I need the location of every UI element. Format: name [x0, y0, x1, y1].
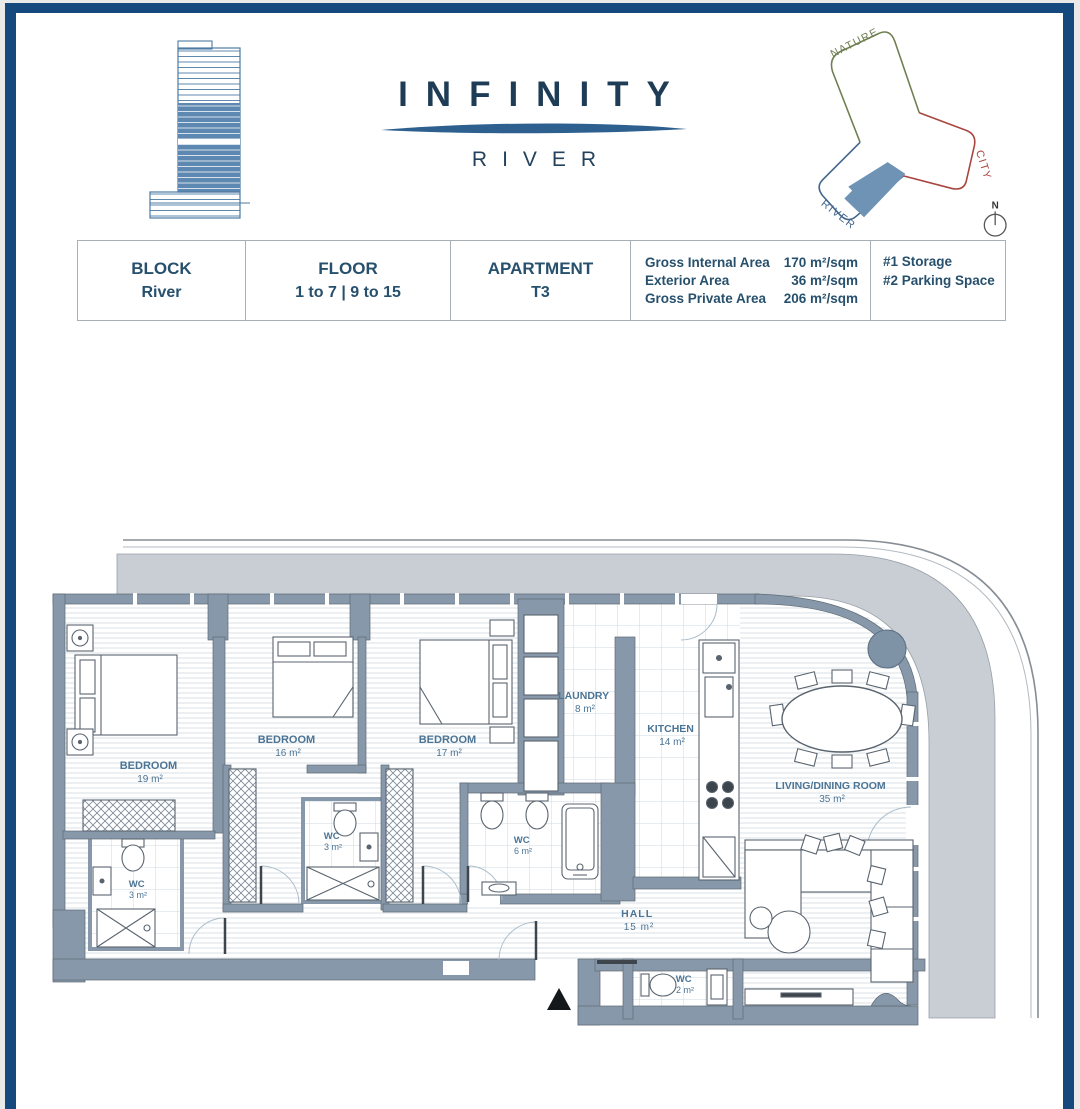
- extra-row: #2 Parking Space: [883, 273, 995, 288]
- closet-icon: [524, 615, 558, 791]
- wardrobe-icon: [386, 769, 413, 902]
- floor-cell: FLOOR 1 to 7 | 9 to 15: [245, 241, 450, 320]
- shower-icon: [97, 909, 155, 947]
- room-label: WC 6 m²: [514, 835, 532, 856]
- toilet-icon: [481, 793, 503, 829]
- entry-arrow-icon: [547, 988, 571, 1010]
- floor-value: 1 to 7 | 9 to 15: [295, 284, 401, 302]
- toilet-icon: [641, 974, 676, 996]
- bidet-icon: [526, 793, 548, 829]
- info-table: BLOCK River FLOOR 1 to 7 | 9 to 15 APART…: [77, 240, 1006, 321]
- apartment-value: T3: [531, 284, 550, 302]
- area-value: 206 m²/sqm: [784, 291, 858, 306]
- area-row: Exterior Area 36 m²/sqm: [645, 273, 858, 288]
- apartment-cell: APARTMENT T3: [450, 241, 630, 320]
- tv-cabinet-icon: [745, 989, 853, 1005]
- extras-cell: #1 Storage #2 Parking Space: [870, 241, 1006, 320]
- wardrobe-icon: [229, 769, 256, 902]
- area-row: Gross Internal Area 170 m²/sqm: [645, 255, 858, 270]
- block-cell: BLOCK River: [77, 241, 245, 320]
- nature-label: NATURE: [829, 26, 881, 61]
- city-label: CITY: [973, 149, 993, 182]
- brand-title: INFINITY: [338, 75, 730, 115]
- extra-row: #1 Storage: [883, 254, 952, 269]
- bed-icon: [420, 640, 512, 724]
- room-label: WC 3 m²: [324, 831, 342, 852]
- kitchen-counter-icon: [699, 640, 739, 880]
- nightstand-icon: [490, 620, 514, 636]
- toilet-icon: [122, 839, 144, 871]
- block-label: BLOCK: [131, 259, 191, 279]
- city-arm: [903, 113, 974, 189]
- nightstand-icon: [490, 727, 514, 743]
- unit-highlight: [844, 162, 905, 217]
- column-icon: [868, 630, 906, 668]
- sheet-page: INFINITY RIVER NATURE CITY RIVER N BLOCK…: [5, 3, 1074, 1109]
- room-label: WC 3 m²: [129, 879, 147, 900]
- nightstand-icon: [67, 625, 93, 651]
- orientation-diagram: NATURE CITY RIVER N: [795, 22, 1007, 241]
- sink-icon: [707, 969, 727, 1005]
- block-value: River: [141, 284, 181, 302]
- area-label: Gross Private Area: [645, 291, 766, 306]
- area-row: Gross Private Area 206 m²/sqm: [645, 291, 858, 306]
- area-value: 36 m²/sqm: [791, 273, 858, 288]
- floor-label: FLOOR: [318, 259, 378, 279]
- floor-plan: BEDROOM 19 m² BEDROOM 16 m² BEDROOM 17 m…: [45, 537, 1048, 1044]
- bed-icon: [75, 655, 177, 735]
- sink-icon: [482, 882, 516, 895]
- area-label: Gross Internal Area: [645, 255, 770, 270]
- compass-label: N: [992, 200, 999, 211]
- apartment-label: APARTMENT: [488, 259, 593, 279]
- tower-logo-icon: [144, 39, 259, 235]
- floor-plan-sheet: { "page": {"frame_color": "#15497d", "ba…: [0, 0, 1080, 1109]
- wave-icon: [378, 123, 690, 136]
- sink-icon: [93, 867, 111, 895]
- bed-icon: [273, 637, 353, 717]
- compass-icon: N: [984, 200, 1006, 236]
- sink-icon: [360, 833, 378, 861]
- room-label: WC 2 m²: [676, 974, 694, 995]
- nightstand-icon: [67, 729, 93, 755]
- brand-subtitle: RIVER: [338, 148, 730, 172]
- brand-block: INFINITY RIVER: [338, 75, 730, 172]
- area-label: Exterior Area: [645, 273, 729, 288]
- wardrobe-icon: [83, 800, 175, 831]
- shower-icon: [307, 867, 379, 900]
- bathtub-icon: [562, 804, 598, 879]
- areas-cell: Gross Internal Area 170 m²/sqm Exterior …: [630, 241, 870, 320]
- area-value: 170 m²/sqm: [784, 255, 858, 270]
